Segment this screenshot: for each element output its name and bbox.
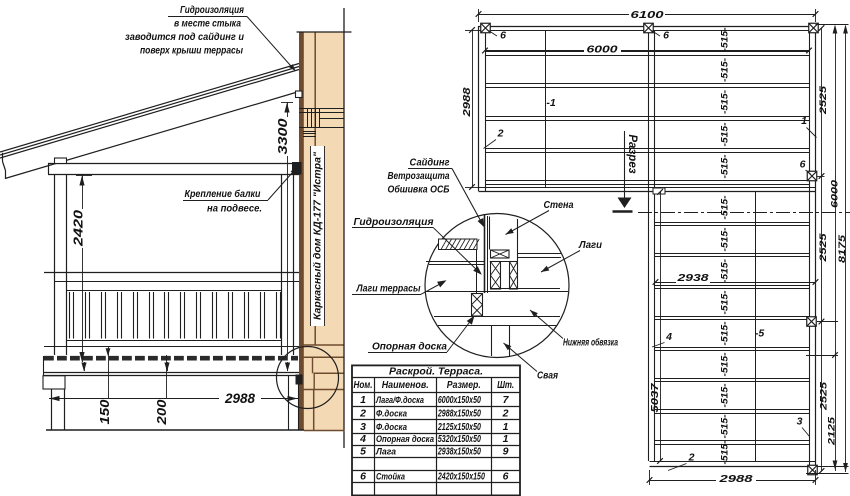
svg-text:2938х150х50: 2938х150х50 [437,446,481,457]
svg-text:-515-: -515- [720,259,731,283]
svg-text:1: 1 [360,394,366,406]
svg-text:Свая: Свая [537,371,558,382]
svg-text:-515-: -515- [720,228,731,252]
svg-text:2: 2 [497,128,504,140]
svg-text:2: 2 [502,407,509,419]
svg-text:1: 1 [801,115,807,127]
svg-text:поверх крыши террасы: поверх крыши террасы [140,46,243,57]
svg-text:2420х150х150: 2420х150х150 [437,471,485,482]
svg-text:Ном.: Ном. [354,379,373,391]
svg-text:6: 6 [800,159,806,171]
svg-text:1: 1 [503,421,509,433]
svg-text:на подвесе.: на подвесе. [207,204,262,215]
svg-text:3300: 3300 [275,118,290,155]
svg-text:Каркасный дом КД-177 "Истра": Каркасный дом КД-177 "Истра" [313,152,324,320]
svg-text:2420: 2420 [71,209,86,247]
svg-text:6000х150х50: 6000х150х50 [438,395,481,406]
svg-text:Раскрой. Терраса.: Раскрой. Терраса. [389,366,483,378]
svg-text:6100: 6100 [631,9,664,21]
svg-text:5037: 5037 [650,383,661,413]
svg-text:Разрез: Разрез [626,134,638,173]
svg-text:-515-: -515- [720,58,731,82]
svg-text:Лага/Ф.доска: Лага/Ф.доска [375,395,424,406]
svg-text:Ветрозащита: Ветрозащита [388,171,450,182]
svg-text:Лаги террасы: Лаги террасы [356,284,421,295]
svg-text:-515-: -515- [720,415,731,439]
svg-text:3: 3 [797,416,803,428]
svg-text:6: 6 [503,470,509,482]
svg-text:-515-: -515- [720,441,731,465]
svg-text:3: 3 [360,421,366,433]
svg-text:4: 4 [665,331,672,343]
svg-text:150: 150 [97,399,112,425]
svg-text:4: 4 [359,433,366,445]
svg-text:2: 2 [688,452,695,464]
svg-text:2125: 2125 [827,416,838,446]
svg-text:1: 1 [503,433,509,445]
svg-text:-5: -5 [755,328,764,340]
svg-text:заводится под сайдинг и: заводится под сайдинг и [125,32,244,43]
svg-text:6000: 6000 [587,44,619,55]
svg-text:5: 5 [360,445,366,457]
svg-text:-515-: -515- [720,384,731,408]
svg-text:2: 2 [359,407,366,419]
svg-text:6: 6 [500,30,506,42]
svg-text:6: 6 [360,470,366,482]
svg-text:Сайдинг: Сайдинг [410,158,451,169]
svg-text:-1: -1 [546,97,555,109]
svg-text:2125х150х50: 2125х150х50 [437,422,481,433]
svg-text:-515-: -515- [720,155,731,179]
svg-text:в месте стыка: в месте стыка [174,19,241,30]
svg-text:Опорная доска: Опорная доска [372,342,447,353]
svg-text:2988: 2988 [462,87,473,118]
svg-text:2525: 2525 [818,233,829,263]
svg-text:Ф.доска: Ф.доска [376,422,407,433]
svg-text:-515-: -515- [720,353,731,377]
svg-text:2988: 2988 [224,391,256,406]
svg-text:2938: 2938 [676,273,709,284]
svg-text:8175: 8175 [837,234,848,263]
svg-text:2525: 2525 [819,381,830,411]
svg-text:6: 6 [663,30,669,42]
svg-text:2988: 2988 [718,473,753,485]
svg-text:-515-: -515- [720,28,731,52]
svg-text:-515-: -515- [720,322,731,346]
svg-text:Стена: Стена [544,200,574,211]
svg-text:5320х150х50: 5320х150х50 [438,434,481,445]
svg-text:Опорная доска: Опорная доска [376,434,434,445]
svg-text:2988х150х50: 2988х150х50 [437,408,481,419]
svg-text:Обшивка ОСБ: Обшивка ОСБ [388,184,450,196]
svg-text:Лаги: Лаги [578,240,602,251]
svg-text:Нижняя обвязка: Нижняя обвязка [563,337,618,349]
svg-text:2525: 2525 [818,85,829,115]
svg-text:Гидроизоляция: Гидроизоляция [354,217,434,228]
svg-text:-515-: -515- [720,196,731,220]
svg-text:9: 9 [503,445,509,457]
svg-text:Ф.доска: Ф.доска [376,408,407,419]
svg-text:Крепление балки: Крепление балки [185,188,261,200]
svg-text:Размер.: Размер. [447,379,481,391]
svg-text:Лага: Лага [375,446,396,457]
svg-text:-515-: -515- [720,90,731,114]
svg-text:Шт.: Шт. [497,379,514,391]
svg-text:6000: 6000 [830,179,841,208]
svg-text:-515-: -515- [720,123,731,147]
svg-text:Наименов.: Наименов. [382,379,429,391]
svg-text:200: 200 [154,399,169,426]
svg-text:Стойка: Стойка [376,471,405,482]
svg-text:Гидроизоляция: Гидроизоляция [180,5,244,16]
svg-text:-515-: -515- [720,291,731,315]
